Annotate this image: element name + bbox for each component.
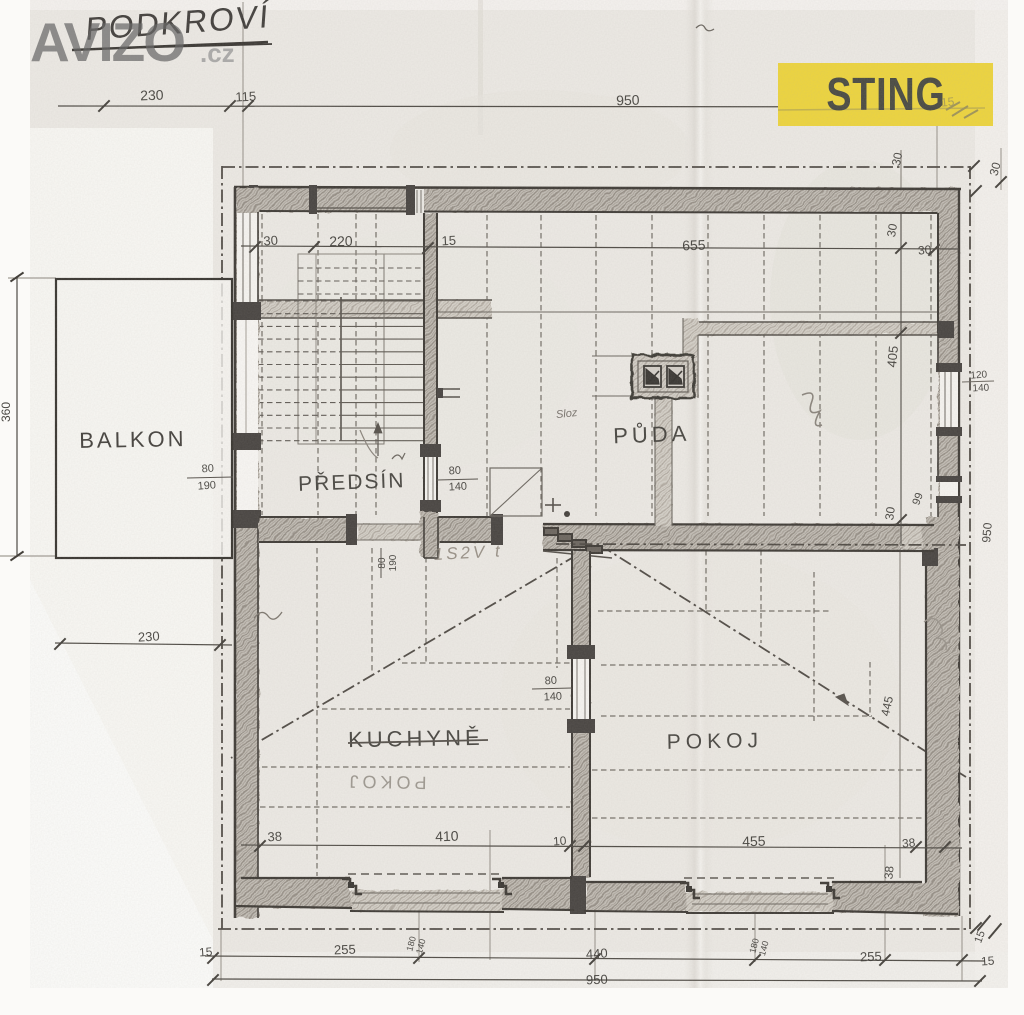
svg-text:360: 360 bbox=[0, 402, 13, 422]
